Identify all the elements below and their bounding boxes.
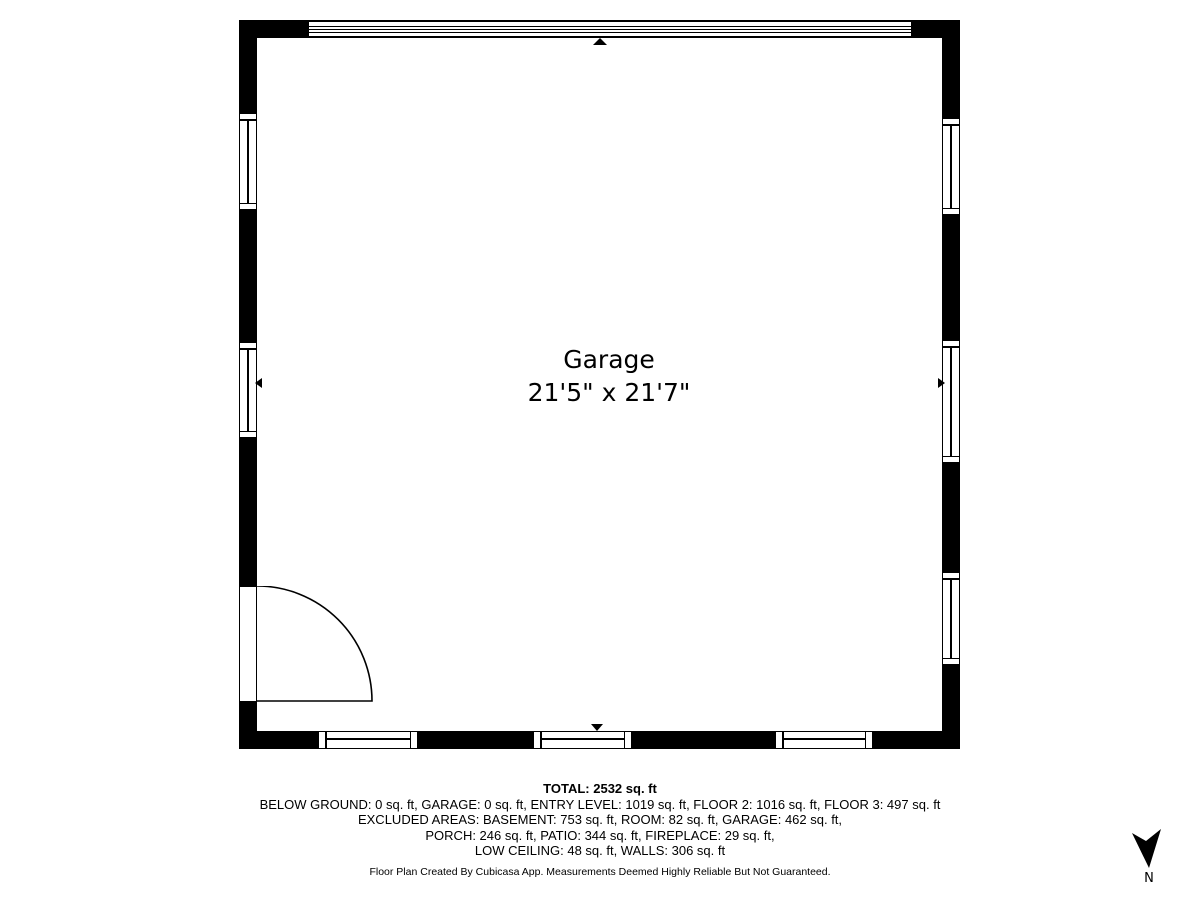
wall-bottom-segment: [873, 731, 960, 749]
disclaimer-text: Floor Plan Created By Cubicasa App. Meas…: [369, 866, 830, 878]
window-right-1: [942, 118, 960, 215]
room-dimensions: 21'5" x 21'7": [528, 376, 691, 409]
wall-bottom-segment: [418, 731, 533, 749]
room-name: Garage: [528, 343, 691, 376]
wall-bottom-segment: [632, 731, 775, 749]
wall-top-right-block: [912, 20, 960, 38]
window-right-3: [942, 572, 960, 665]
arrow-right-icon: [938, 378, 945, 388]
window-bottom-2: [533, 731, 632, 749]
door-frame: [239, 586, 257, 702]
window-left-2: [239, 342, 257, 438]
wall-bottom-segment: [239, 731, 318, 749]
summary-line: PORCH: 246 sq. ft, PATIO: 344 sq. ft, FI…: [260, 828, 941, 844]
door-swing-icon: [256, 586, 374, 704]
north-label: N: [1144, 871, 1154, 886]
summary-line: BELOW GROUND: 0 sq. ft, GARAGE: 0 sq. ft…: [260, 797, 941, 813]
summary-line: LOW CEILING: 48 sq. ft, WALLS: 306 sq. f…: [260, 843, 941, 859]
wall-left-segment: [239, 438, 257, 586]
area-summary: TOTAL: 2532 sq. ft BELOW GROUND: 0 sq. f…: [260, 781, 941, 859]
window-left-1: [239, 113, 257, 210]
wall-left-segment: [239, 38, 257, 113]
room-label: Garage 21'5" x 21'7": [528, 343, 691, 409]
wall-right-segment: [942, 463, 960, 572]
arrow-left-icon: [255, 378, 262, 388]
window-bottom-1: [318, 731, 418, 749]
north-arrow-icon: [1132, 828, 1164, 870]
wall-top-left-block: [239, 20, 308, 38]
wall-right-segment: [942, 38, 960, 118]
summary-line: EXCLUDED AREAS: BASEMENT: 753 sq. ft, RO…: [260, 812, 941, 828]
wall-right-segment: [942, 215, 960, 340]
floor-plan-page: { "room": { "name": "Garage", "dimension…: [0, 0, 1200, 900]
arrow-top-icon: [593, 38, 607, 45]
window-right-2: [942, 340, 960, 463]
garage-door-line: [309, 29, 911, 31]
wall-left-segment: [239, 210, 257, 342]
garage-door-line: [309, 32, 911, 34]
arrow-bottom-icon: [591, 724, 603, 731]
garage-door: [308, 20, 912, 38]
garage-door-line: [309, 26, 911, 28]
summary-total: TOTAL: 2532 sq. ft: [260, 781, 941, 797]
window-bottom-3: [775, 731, 873, 749]
floor-plan: Garage 21'5" x 21'7": [0, 0, 1200, 900]
